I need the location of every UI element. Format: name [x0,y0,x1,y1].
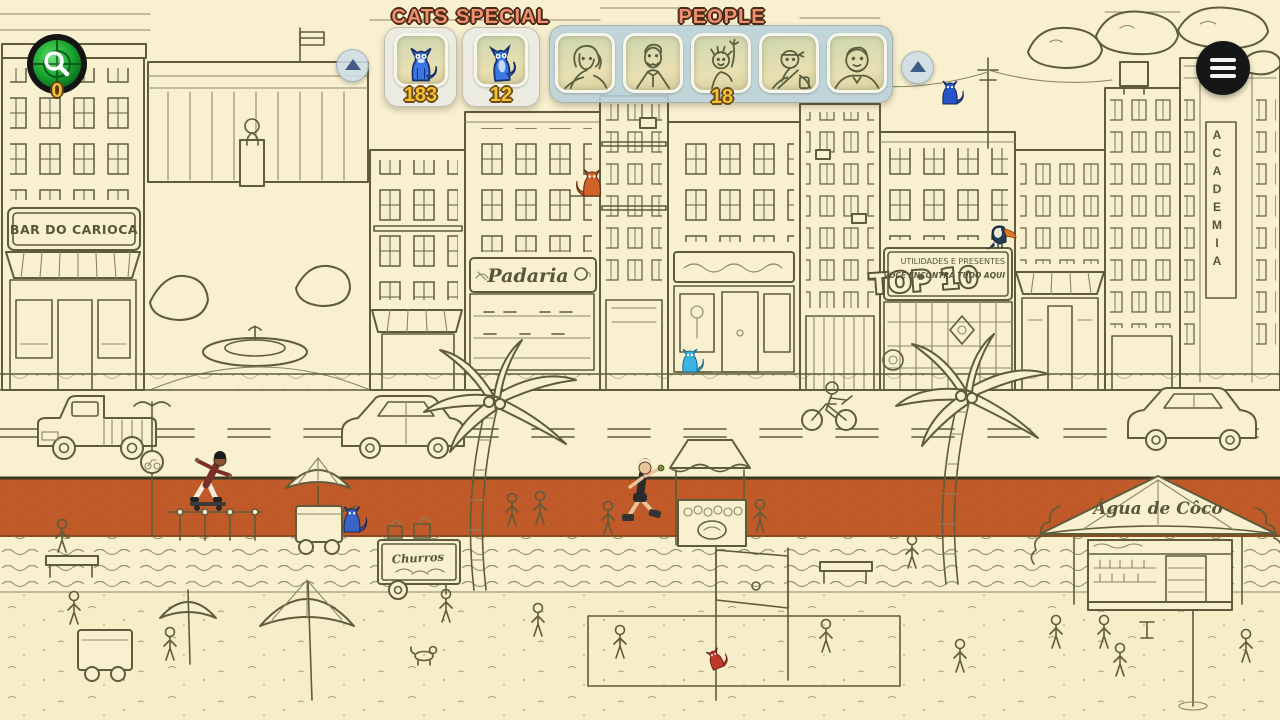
churros-sign-text: Churros [391,550,444,567]
blue-special-cat-icon [477,36,525,84]
gift-shop-sign-line2: VOCÊ ENCONTRA TUDO AQUI [883,271,1005,280]
building-boutique [668,122,800,390]
menu-button[interactable] [1196,41,1250,95]
game-scene[interactable]: BAR DO CARIOCA [0,0,1280,720]
building-cafe [1015,150,1105,390]
up-arrow-icon [345,59,361,70]
building-apartments [800,104,880,390]
building-tower [1105,62,1180,390]
hamburger-menu-icon [1210,74,1236,78]
people-count: 18 [700,86,744,109]
gift-shop-sign-line1: UTILIDADES E PRESENTES [901,257,1005,266]
coconut-kiosk-sign-text: Água de Côco [1091,498,1223,519]
blue-cat-icon [397,36,445,84]
people-portrait-mustached-man [623,33,683,93]
building-academia [1180,58,1280,390]
building-padaria: Padaria [465,112,612,390]
special-panel-tile [474,33,528,87]
cats-panel-tile [394,33,448,87]
special-count: 12 [463,84,539,107]
building-tall-narrow [600,96,668,390]
panel-scroll-left-button[interactable] [336,49,369,82]
hamburger-menu-icon [1210,66,1236,70]
people-portrait-curly-haired-man [555,33,615,93]
special-panel: 12 [462,27,540,107]
hint-count: 0 [26,80,88,103]
cats-count: 183 [385,84,456,107]
panel-scroll-right-button[interactable] [901,51,934,84]
people-portrait-waving-person [691,33,751,93]
building-top10-store: TOP 10 UTILIDADES E PRESENTES VOCÊ ENCON… [869,132,1015,390]
people-portrait-heavyset-man [827,33,887,93]
cats-panel-title: CATS [381,6,459,29]
bar-sign-text: BAR DO CARIOCA [10,222,138,237]
special-panel-title: SPECIAL [456,6,548,29]
game-viewport: BAR DO CARIOCA [0,0,1280,720]
people-portrait-headband-person [759,33,819,93]
cats-panel: 183 [384,27,457,107]
padaria-sign-text: Padaria [486,265,568,287]
up-arrow-icon [910,61,926,72]
hamburger-menu-icon [1210,58,1236,62]
